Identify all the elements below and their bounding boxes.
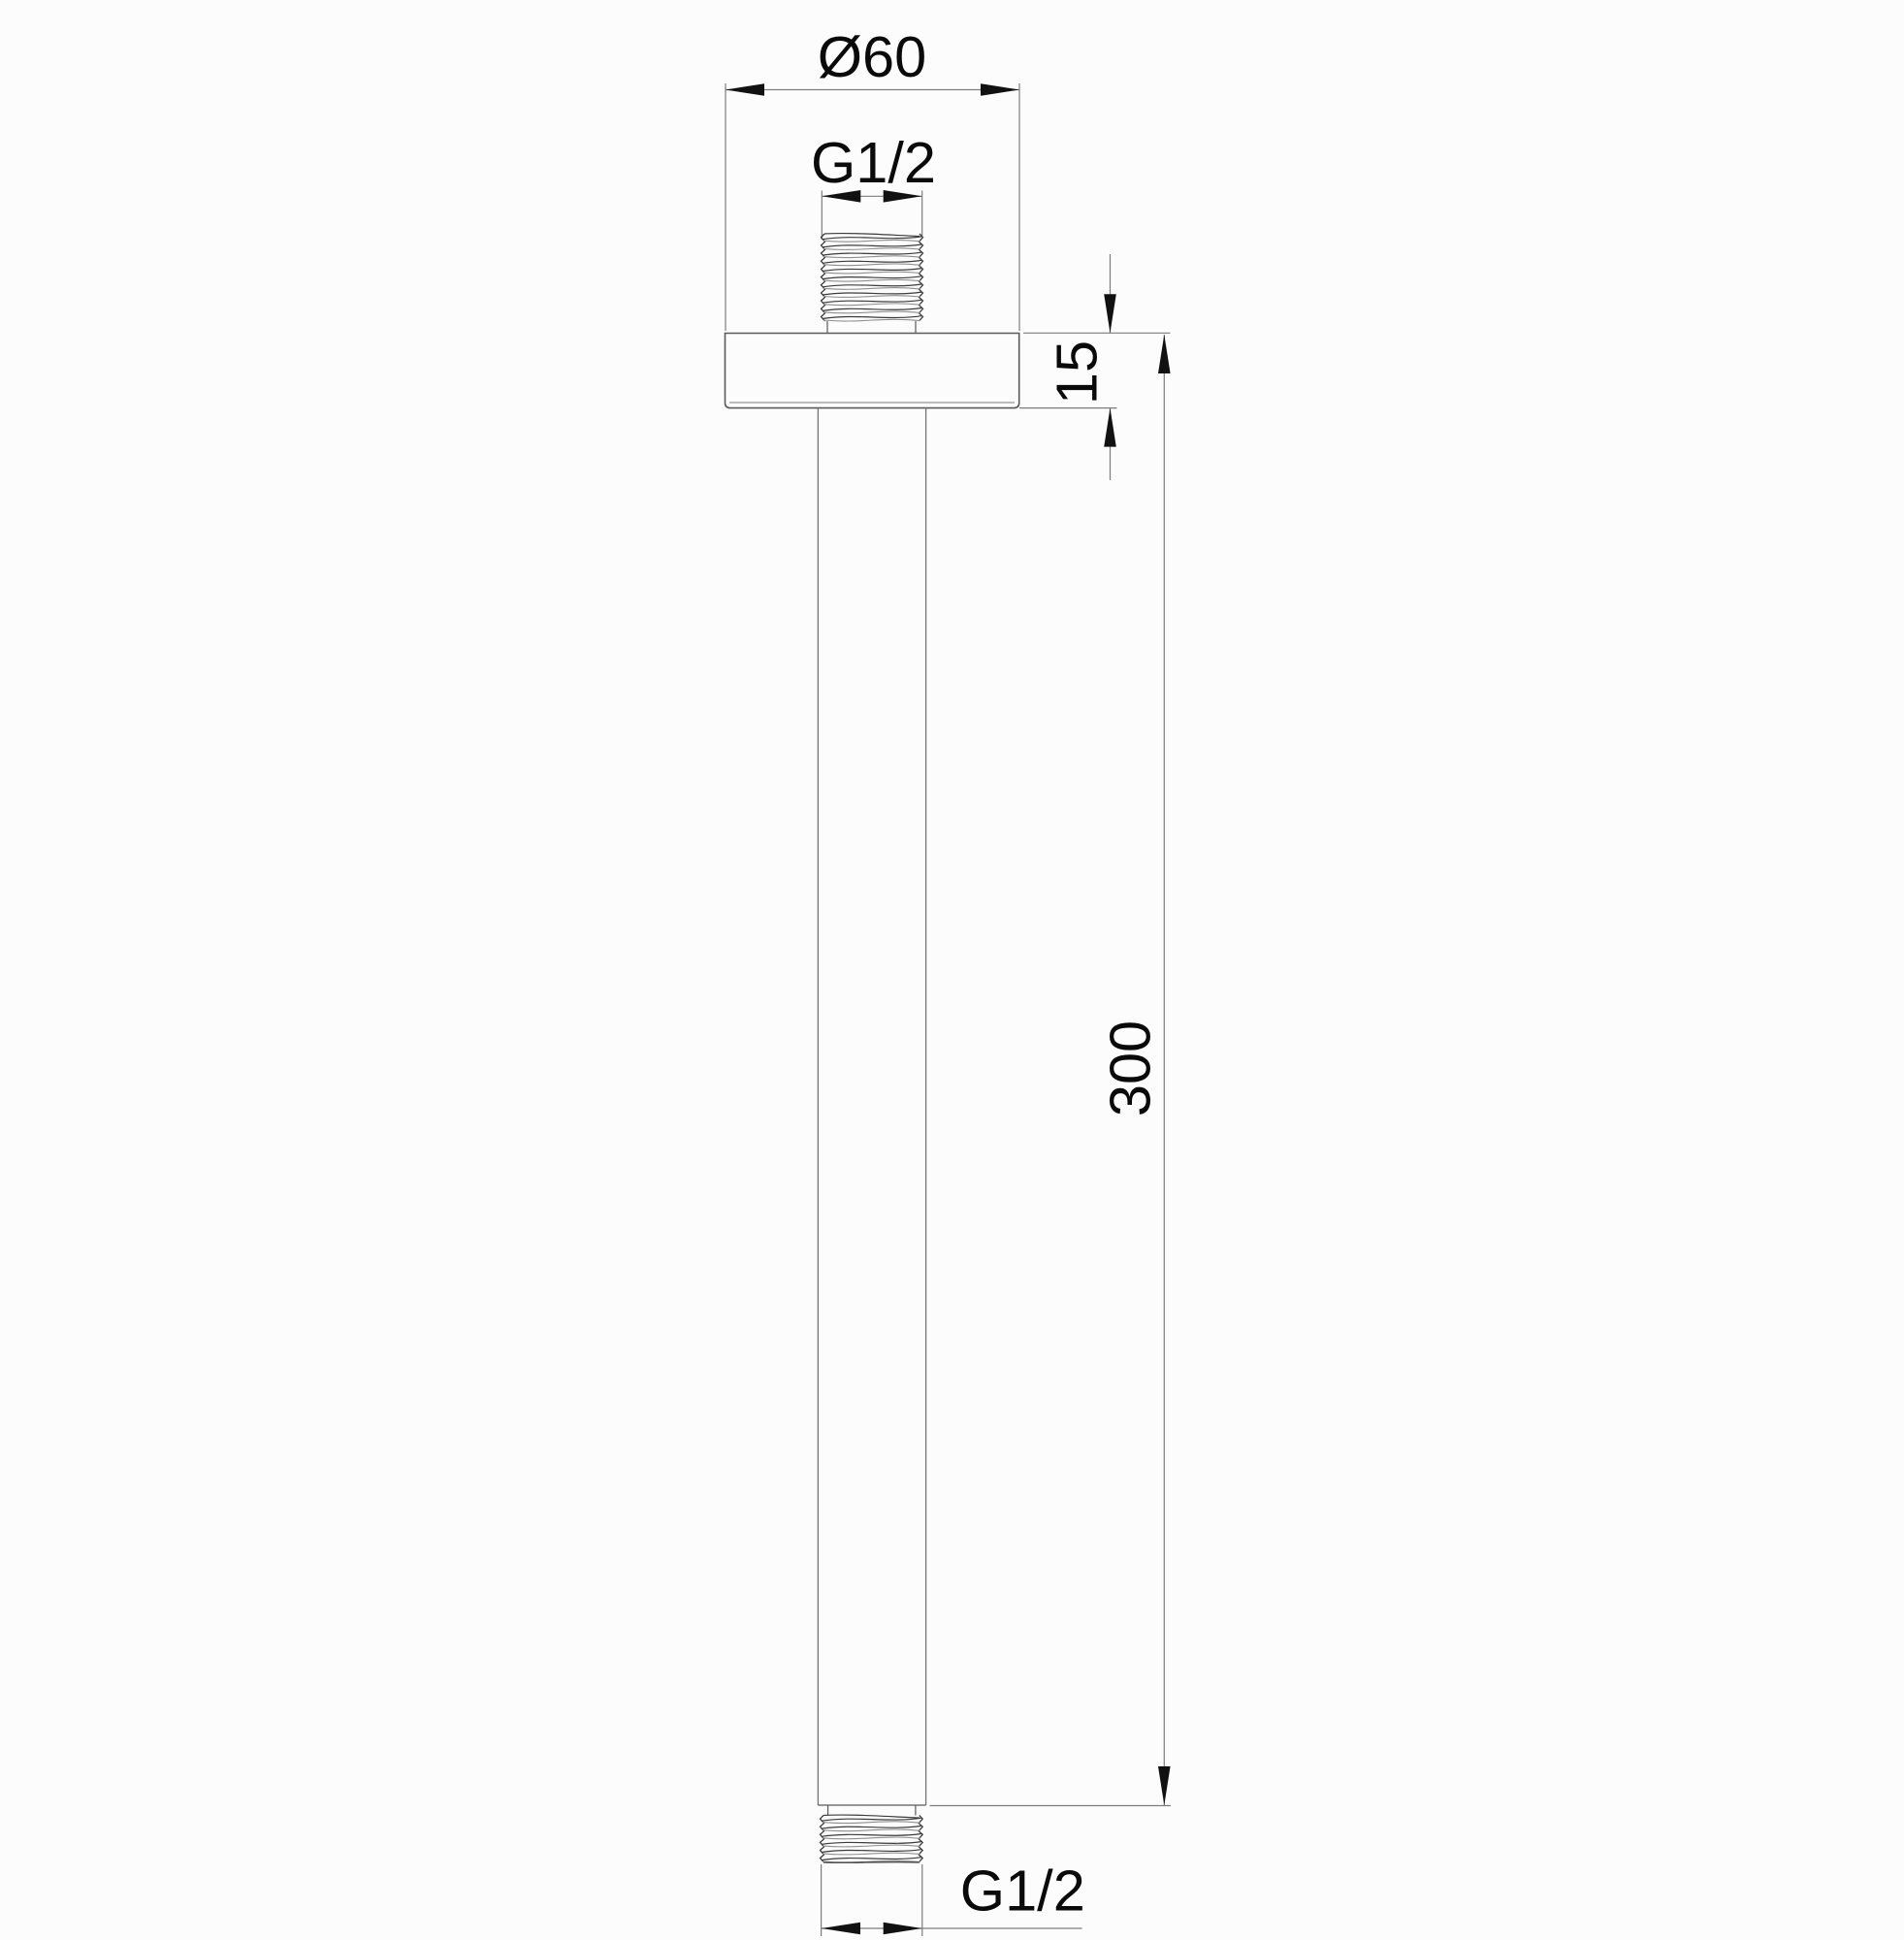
svg-text:Ø60: Ø60: [818, 24, 926, 89]
svg-text:15: 15: [1044, 340, 1109, 404]
svg-text:G1/2: G1/2: [960, 1859, 1085, 1924]
svg-text:300: 300: [1098, 1020, 1163, 1116]
svg-text:G1/2: G1/2: [811, 130, 936, 195]
